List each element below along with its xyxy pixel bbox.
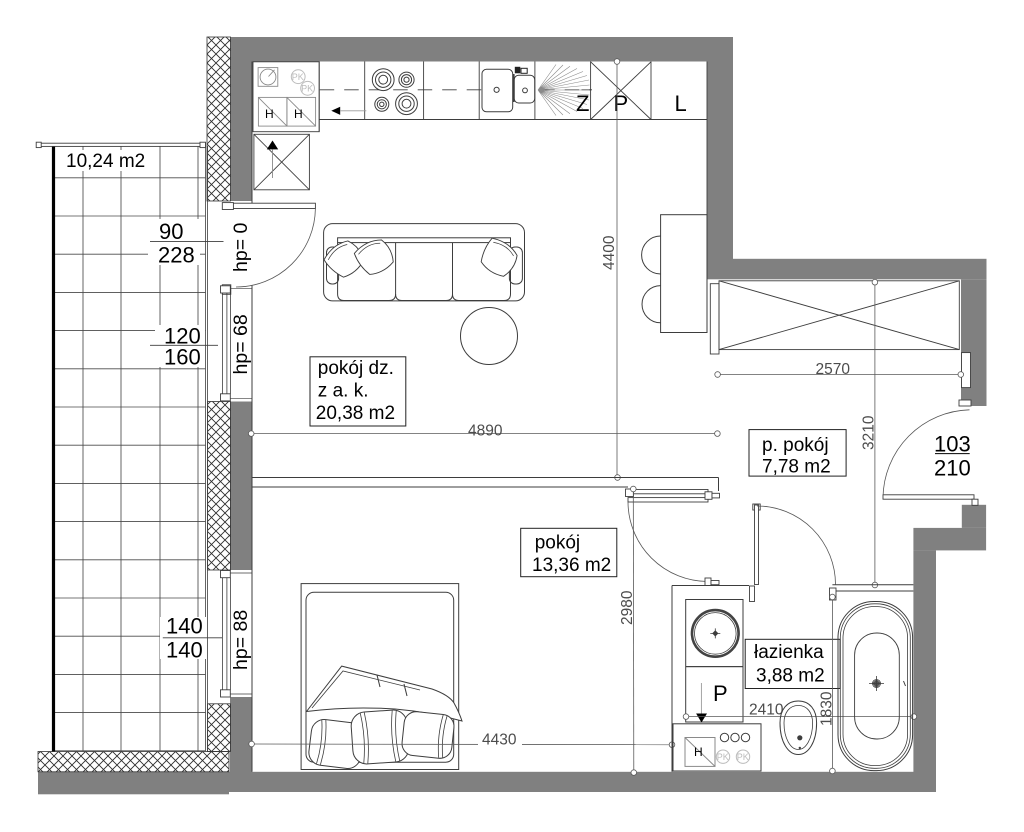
svg-text:PK: PK [292,72,304,82]
svg-text:160: 160 [164,345,201,370]
svg-text:PK: PK [737,752,749,762]
svg-text:P: P [713,681,728,706]
svg-text:H: H [294,107,303,121]
svg-text:H: H [694,745,703,759]
svg-text:H: H [265,107,274,121]
svg-text:Z: Z [576,91,589,116]
svg-text:hp= 0: hp= 0 [230,223,252,272]
svg-text:P: P [614,91,629,116]
svg-text:1830: 1830 [818,691,835,726]
svg-text:10,24 m2: 10,24 m2 [66,151,145,172]
svg-text:z a. k.: z a. k. [318,380,369,401]
svg-text:PK: PK [301,84,313,94]
svg-text:2980: 2980 [619,590,636,625]
svg-text:hp= 88: hp= 88 [230,610,252,670]
svg-text:4890: 4890 [468,422,503,439]
svg-text:PK: PK [717,752,729,762]
svg-text:228: 228 [158,243,195,268]
svg-text:łazienka: łazienka [754,642,824,663]
svg-text:p. pokój: p. pokój [762,435,829,456]
svg-text:2410: 2410 [749,702,784,719]
svg-text:L: L [675,91,687,116]
svg-text:pokój dz.: pokój dz. [318,358,394,379]
svg-text:2570: 2570 [816,361,851,378]
svg-text:7,78 m2: 7,78 m2 [762,457,831,478]
svg-text:140: 140 [166,638,203,663]
svg-text:13,36 m2: 13,36 m2 [532,555,611,576]
svg-text:103: 103 [934,432,971,457]
svg-text:210: 210 [934,456,971,481]
svg-text:3,88 m2: 3,88 m2 [756,666,825,687]
svg-text:140: 140 [166,614,203,639]
svg-text:4400: 4400 [601,235,618,270]
svg-text:20,38 m2: 20,38 m2 [316,403,395,424]
svg-text:90: 90 [159,219,183,244]
svg-text:hp= 68: hp= 68 [230,314,252,374]
svg-text:3210: 3210 [861,415,878,450]
svg-text:4430: 4430 [482,731,517,748]
svg-text:pokój: pokój [535,533,580,554]
